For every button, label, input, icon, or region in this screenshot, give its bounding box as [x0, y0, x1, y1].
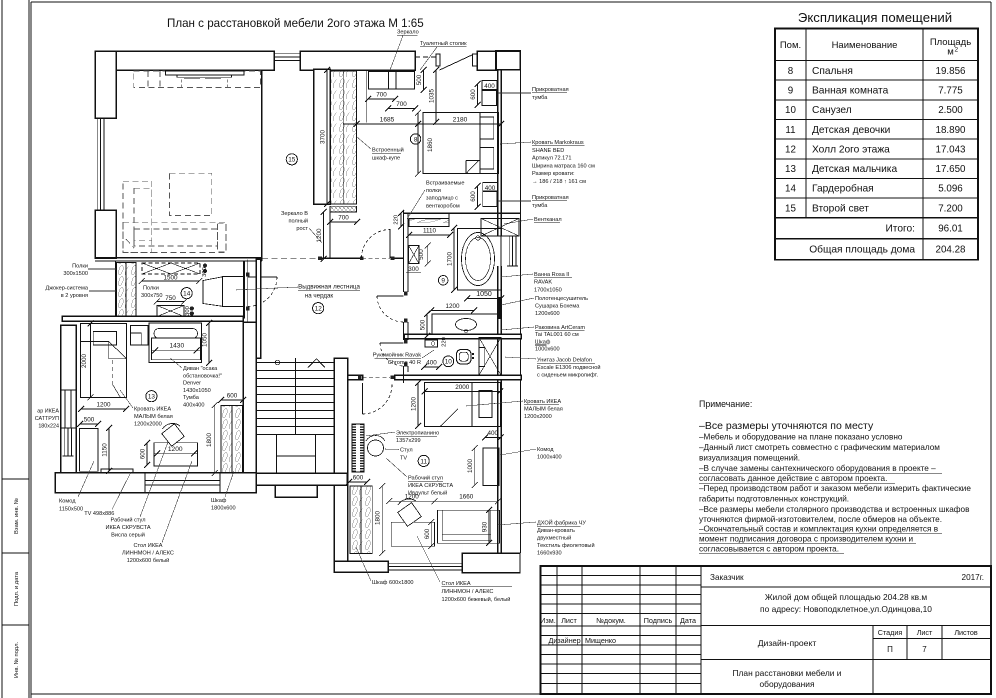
svg-text:400x400: 400x400 [183, 403, 204, 409]
svg-text:400: 400 [485, 185, 496, 192]
svg-text:1150: 1150 [102, 443, 109, 457]
svg-text:Изм.: Изм. [540, 616, 555, 625]
svg-text:1660x930: 1660x930 [537, 551, 562, 557]
svg-text:Детская девочки: Детская девочки [812, 125, 890, 136]
svg-text:15: 15 [785, 203, 796, 214]
svg-text:ИКЕА СКРУВСТА: ИКЕА СКРУВСТА [408, 483, 453, 489]
svg-text:заподлицо с: заподлицо с [426, 196, 458, 202]
svg-text:19.856: 19.856 [936, 66, 967, 77]
svg-text:Итого:: Итого: [885, 224, 915, 235]
svg-text:тумба: тумба [532, 95, 548, 101]
svg-text:Шкаф: Шкаф [535, 339, 551, 345]
svg-text:1200x2000: 1200x2000 [134, 422, 162, 428]
svg-text:2017г.: 2017г. [962, 573, 984, 582]
svg-text:12: 12 [315, 306, 323, 313]
svg-text:500: 500 [418, 249, 425, 260]
svg-text:1800: 1800 [206, 433, 213, 448]
svg-text:700: 700 [338, 215, 349, 222]
svg-text:Детская мальчика: Детская мальчика [812, 164, 897, 175]
svg-text:300: 300 [408, 266, 419, 273]
svg-text:№докум.: №докум. [596, 616, 626, 625]
svg-text:10: 10 [785, 105, 796, 116]
svg-text:11: 11 [785, 125, 795, 136]
svg-text:1430x1050: 1430x1050 [183, 388, 211, 394]
svg-text:оборудования: оборудования [760, 679, 815, 689]
svg-text:План с расстановкой мебели 2о: План с расстановкой мебели 2ого этажа М … [167, 17, 424, 30]
svg-text:1200: 1200 [96, 402, 111, 409]
svg-text:План расстановки мебели и: План расстановки мебели и [733, 668, 842, 678]
svg-text:300: 300 [202, 267, 208, 277]
svg-text:300x1500: 300x1500 [63, 271, 88, 277]
svg-text:7.200: 7.200 [938, 203, 963, 214]
svg-text:300: 300 [185, 306, 191, 316]
svg-text:8: 8 [788, 66, 794, 77]
svg-text:тумба: тумба [532, 203, 548, 209]
svg-text:Прикроватная: Прикроватная [532, 195, 569, 201]
svg-text:–Все размеры мебели столярного: –Все размеры мебели столярного производс… [699, 505, 969, 514]
svg-text:–Мебель и оборудование на план: –Мебель и оборудование на плане показано… [699, 433, 903, 442]
svg-text:Ванная комната: Ванная комната [812, 85, 889, 96]
svg-text:5.096: 5.096 [938, 184, 963, 195]
svg-text:Холл 2ого этажа: Холл 2ого этажа [812, 144, 890, 155]
svg-text:1200: 1200 [411, 397, 418, 412]
svg-text:7.775: 7.775 [938, 85, 963, 96]
svg-text:1860: 1860 [427, 138, 434, 153]
svg-text:Рабочий стул: Рабочий стул [111, 517, 146, 524]
svg-text:1035: 1035 [429, 89, 436, 104]
svg-text:момент подписания договора с п: момент подписания договора с производите… [699, 535, 913, 544]
svg-text:1050: 1050 [476, 291, 492, 298]
svg-text:1200: 1200 [445, 303, 460, 310]
svg-text:Экспликация помещений: Экспликация помещений [798, 10, 952, 25]
svg-text:Tai TAL001 60 см: Tai TAL001 60 см [535, 332, 579, 338]
svg-text:Спальня: Спальня [812, 66, 853, 77]
svg-text:700: 700 [396, 101, 407, 108]
svg-text:14: 14 [183, 291, 191, 298]
svg-text:1200x600 бежевый, белый: 1200x600 бежевый, белый [442, 596, 511, 603]
svg-text:1660: 1660 [459, 494, 474, 501]
svg-text:Шкаф 600x1800: Шкаф 600x1800 [372, 580, 414, 586]
svg-text:Шкаф: Шкаф [211, 498, 227, 504]
svg-text:13: 13 [148, 394, 156, 401]
svg-text:1000x600: 1000x600 [535, 347, 560, 353]
svg-text:1500: 1500 [163, 275, 178, 282]
svg-text:Полки: Полки [72, 264, 88, 270]
svg-text:Примечание:: Примечание: [699, 399, 752, 409]
svg-text:Раковина ArtCeram: Раковина ArtCeram [535, 325, 585, 331]
svg-text:Рабочий стул: Рабочий стул [408, 475, 443, 482]
svg-text:Листов: Листов [954, 628, 978, 637]
svg-text:600: 600 [424, 528, 431, 539]
svg-text:750: 750 [165, 295, 176, 302]
svg-text:→ 186 / 218 ↑ 161 см: → 186 / 218 ↑ 161 см [532, 179, 586, 185]
svg-text:Стадия: Стадия [878, 628, 903, 637]
svg-text:1685: 1685 [380, 117, 395, 124]
svg-text:Зеркало: Зеркало [397, 30, 419, 36]
svg-text:Артикул 72.171: Артикул 72.171 [532, 156, 572, 162]
svg-text:Выдвижная лестница: Выдвижная лестница [298, 284, 360, 291]
svg-text:Ванна Rosa II: Ванна Rosa II [534, 272, 570, 278]
svg-text:с сиденьем микролифт.: с сиденьем микролифт. [537, 372, 598, 378]
svg-text:ар ИКЕА: ар ИКЕА [37, 409, 59, 415]
svg-text:рост: рост [296, 226, 308, 232]
svg-text:Встраиваемые: Встраиваемые [426, 181, 465, 187]
svg-text:1200x2000: 1200x2000 [524, 414, 552, 420]
svg-text:500: 500 [84, 417, 95, 424]
svg-text:согласовать данное действие с: согласовать данное действие с автором пр… [699, 474, 887, 483]
svg-text:Стул: Стул [400, 448, 413, 454]
svg-text:Подпись: Подпись [644, 616, 673, 625]
svg-text:1800: 1800 [375, 511, 382, 526]
svg-text:МАЛЫМ белая: МАЛЫМ белая [134, 414, 173, 420]
svg-text:13: 13 [785, 164, 796, 175]
svg-text:Лист: Лист [561, 616, 577, 625]
svg-text:1150x500: 1150x500 [59, 507, 83, 513]
svg-text:по адресу: Новоподклетное,ул.О: по адресу: Новоподклетное,ул.Одинцова,10 [760, 604, 932, 614]
svg-text:Лист: Лист [917, 628, 933, 637]
svg-text:–Окончательный состав и компле: –Окончательный состав и комплектация кух… [699, 525, 938, 534]
svg-text:Инв. № подл.: Инв. № подл. [14, 642, 20, 678]
svg-text:180x224: 180x224 [38, 423, 59, 429]
svg-text:Дата: Дата [680, 616, 696, 625]
svg-text:визуализация помещений.: визуализация помещений. [699, 454, 800, 463]
svg-text:1430: 1430 [169, 343, 184, 350]
svg-text:Стол ИКЕА: Стол ИКЕА [133, 543, 162, 549]
svg-text:Chrome 40 R: Chrome 40 R [388, 360, 421, 366]
svg-text:Рукомойник Ravak: Рукомойник Ravak [373, 352, 422, 359]
svg-text:Escale E1306 подвесной: Escale E1306 подвесной [537, 364, 601, 371]
svg-text:600: 600 [470, 191, 477, 202]
svg-text:Стол ИКЕА: Стол ИКЕА [442, 581, 471, 587]
svg-text:Комод: Комод [537, 447, 554, 453]
svg-text:венткоробом: венткоробом [426, 203, 460, 209]
svg-text:Гардеробная: Гардеробная [812, 183, 874, 195]
svg-text:на чердак: на чердак [305, 293, 334, 300]
svg-text:Наименование: Наименование [832, 40, 898, 51]
svg-text:11: 11 [420, 458, 427, 465]
svg-text:14: 14 [785, 184, 796, 195]
svg-text:САТТРУП: САТТРУП [35, 416, 59, 422]
svg-text:МАЛЫМ белая: МАЛЫМ белая [524, 407, 563, 413]
svg-text:2.500: 2.500 [938, 105, 963, 116]
svg-text:600: 600 [140, 448, 147, 459]
svg-text:Текстиль фиолетовый: Текстиль фиолетовый [537, 542, 595, 549]
svg-text:500: 500 [416, 74, 423, 85]
svg-text:Зеркало В: Зеркало В [281, 211, 308, 217]
svg-text:15: 15 [288, 157, 296, 164]
svg-text:Вентканал: Вентканал [534, 217, 562, 223]
svg-text:204.28: 204.28 [936, 245, 967, 256]
svg-text:220: 220 [393, 215, 399, 225]
svg-text:TV 498x886: TV 498x886 [84, 511, 114, 517]
svg-text:ЛИННМОН / АЛЕКС: ЛИННМОН / АЛЕКС [122, 551, 174, 557]
svg-text:–Все размеры уточняются по мес: –Все размеры уточняются по месту [699, 420, 874, 432]
svg-text:Жилой дом общей площадью 204.2: Жилой дом общей площадью 204.28 кв.м [765, 592, 928, 602]
svg-text:RAVAK: RAVAK [534, 280, 552, 286]
svg-text:полки: полки [426, 188, 441, 194]
svg-text:габариты подготовленных констр: габариты подготовленных конструкций. [699, 495, 849, 504]
svg-text:полный: полный [288, 218, 308, 225]
svg-text:Второй свет: Второй свет [812, 203, 869, 214]
svg-text:Сушарка Бохема: Сушарка Бохема [535, 303, 580, 309]
svg-text:1800x600: 1800x600 [211, 506, 236, 512]
svg-text:Тумба: Тумба [183, 395, 200, 401]
svg-text:3700: 3700 [320, 130, 327, 145]
svg-text:–Перед производством работ и з: –Перед производством работ и заказом меб… [699, 484, 971, 493]
svg-text:–В случае замены сантехническо: –В случае замены сантехнического оборудо… [699, 464, 936, 473]
svg-text:Встроенный: Встроенный [372, 147, 404, 154]
svg-text:Прикроватная: Прикроватная [532, 87, 569, 93]
svg-text:ДХОЙ фабрика ЧУ: ДХОЙ фабрика ЧУ [537, 519, 586, 527]
svg-text:12: 12 [785, 144, 796, 155]
svg-text:1200: 1200 [168, 446, 183, 453]
svg-text:700: 700 [376, 92, 387, 99]
svg-text:обстановочка!": обстановочка!" [183, 373, 222, 379]
svg-text:Взам. инв. №: Взам. инв. № [14, 498, 20, 534]
svg-text:Ширина матраса 160 см: Ширина матраса 160 см [532, 163, 595, 169]
svg-text:ЛИННМОН / АЛЕКС: ЛИННМОН / АЛЕКС [442, 589, 494, 595]
svg-text:Общая площадь дома: Общая площадь дома [809, 244, 915, 256]
svg-text:600: 600 [227, 393, 238, 400]
svg-text:400: 400 [484, 83, 495, 90]
svg-text:1700x1050: 1700x1050 [534, 287, 562, 293]
svg-text:1200x600 белый: 1200x600 белый [127, 557, 170, 564]
svg-text:600: 600 [470, 89, 477, 100]
svg-text:Заказчик: Заказчик [710, 573, 744, 582]
svg-text:Ивдульт белый: Ивдульт белый [408, 490, 447, 497]
svg-text:TV: TV [400, 456, 407, 462]
svg-text:Санузел: Санузел [812, 105, 852, 116]
svg-text:17.650: 17.650 [936, 164, 967, 175]
svg-text:Полки: Полки [143, 286, 159, 292]
svg-text:1200x600: 1200x600 [535, 311, 560, 317]
svg-text:1110: 1110 [423, 228, 437, 235]
svg-text:1000x400: 1000x400 [537, 455, 562, 461]
svg-text:двухместный: двухместный [537, 535, 571, 542]
svg-text:600: 600 [353, 475, 364, 482]
svg-text:Диван-кровать: Диван-кровать [537, 528, 575, 534]
svg-text:Мищенко: Мищенко [585, 636, 616, 645]
svg-text:Дизайнер: Дизайнер [549, 636, 581, 645]
svg-text:Кровать ИКЕА: Кровать ИКЕА [134, 407, 171, 413]
svg-text:96.01: 96.01 [938, 224, 963, 235]
svg-text:м: м [947, 47, 954, 58]
svg-text:в 2 уровня: в 2 уровня [61, 293, 88, 299]
svg-text:1050: 1050 [202, 333, 209, 348]
svg-text:2180: 2180 [453, 117, 468, 124]
svg-text:18.890: 18.890 [936, 125, 967, 136]
svg-text:2000: 2000 [455, 384, 470, 391]
svg-text:Кровать Markokraus: Кровать Markokraus [532, 140, 584, 146]
svg-text:SHANE BED: SHANE BED [532, 148, 564, 154]
svg-text:Denver: Denver [183, 381, 201, 387]
svg-text:2000: 2000 [81, 354, 88, 369]
svg-text:9: 9 [788, 85, 793, 96]
svg-text:Унитаз Jacob Delafon: Унитаз Jacob Delafon [537, 358, 592, 364]
svg-text:Электропианино: Электропианино [396, 431, 439, 437]
svg-text:17.043: 17.043 [936, 144, 967, 155]
svg-text:Полотенцесушитель: Полотенцесушитель [535, 296, 588, 302]
svg-text:500: 500 [420, 319, 427, 330]
svg-text:П: П [887, 645, 893, 654]
svg-text:Джокер-система: Джокер-система [45, 286, 88, 292]
svg-text:Кровать ИКЕА: Кровать ИКЕА [524, 399, 561, 405]
svg-text:Размер кровати:: Размер кровати: [532, 171, 575, 177]
svg-text:шкаф-купе: шкаф-купе [372, 156, 400, 162]
svg-text:ИКЕА СКРУВСТА: ИКЕА СКРУВСТА [105, 525, 150, 531]
svg-text:400: 400 [487, 430, 498, 437]
svg-text:Туалетный столик: Туалетный столик [420, 40, 467, 47]
svg-text:1700: 1700 [447, 252, 454, 267]
svg-text:10: 10 [445, 359, 453, 366]
svg-text:Подп. и дата: Подп. и дата [14, 571, 20, 606]
svg-text:930: 930 [482, 521, 489, 532]
svg-text:Висла серый: Висла серый [111, 532, 145, 539]
svg-text:400: 400 [426, 360, 437, 367]
svg-text:Дизайн-проект: Дизайн-проект [758, 638, 817, 648]
svg-text:2: 2 [955, 47, 959, 54]
svg-text:1000: 1000 [467, 459, 474, 474]
svg-text:7: 7 [922, 645, 927, 654]
svg-text:220: 220 [442, 337, 448, 347]
svg-text:9: 9 [441, 278, 445, 285]
svg-text:Пом.: Пом. [780, 40, 801, 51]
svg-text:Комод: Комод [59, 499, 76, 505]
svg-text:8: 8 [414, 136, 418, 143]
svg-text:согласовывается с автором прое: согласовывается с автором проекта. [699, 545, 839, 554]
svg-text:Диван "осака: Диван "осака [183, 366, 218, 372]
svg-text:–Данный лист смотреть совместн: –Данный лист смотреть совместно с графич… [699, 443, 940, 452]
svg-text:уточняются фирмой-изготовителе: уточняются фирмой-изготовителем, после о… [699, 515, 942, 524]
svg-text:1357x299: 1357x299 [396, 438, 421, 444]
svg-text:300x750: 300x750 [141, 293, 162, 299]
